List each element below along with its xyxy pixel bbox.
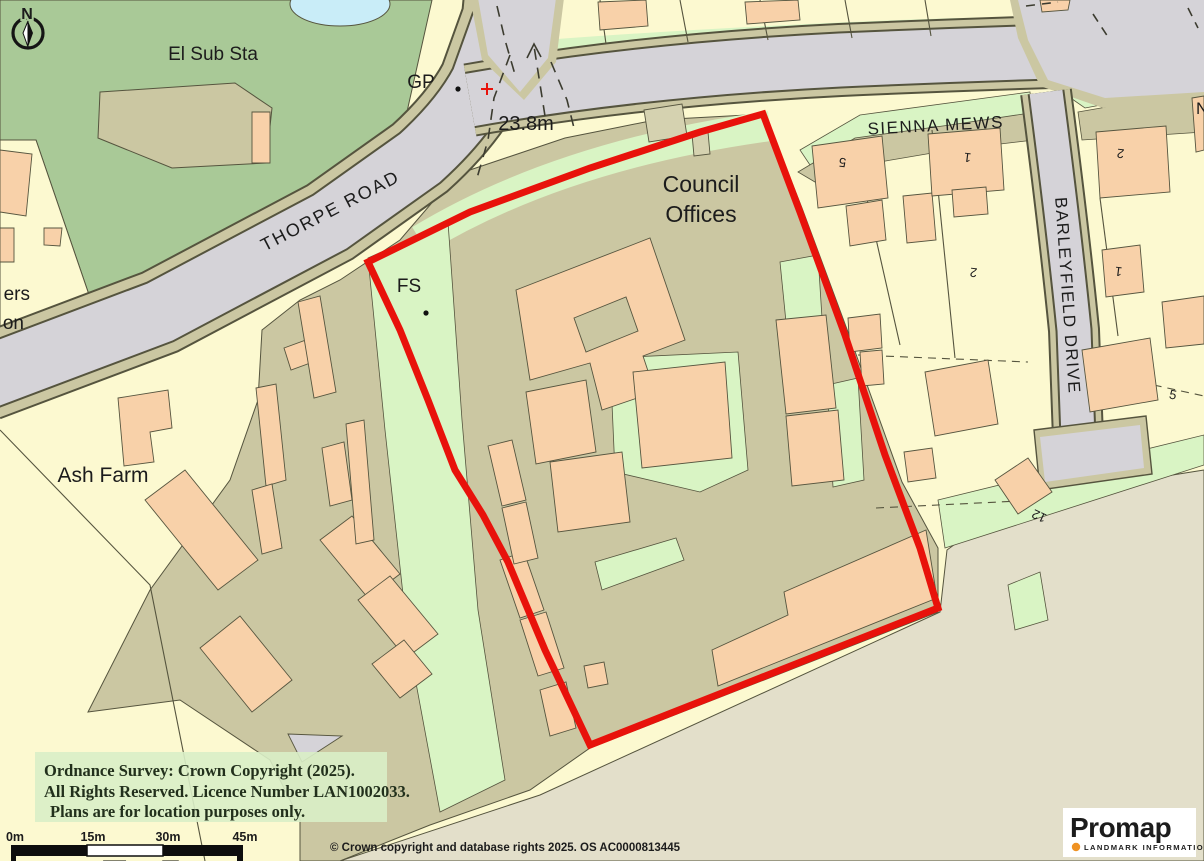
- map-viewport[interactable]: El Sub Sta GP 23.8m THORPE ROAD SIENNA M…: [0, 0, 1204, 861]
- edge-label-right-1: N: [1196, 99, 1204, 118]
- copyright-line-2: All Rights Reserved. Licence Number LAN1…: [44, 782, 410, 801]
- copyright-box: Ordnance Survey: Crown Copyright (2025).…: [35, 752, 410, 822]
- label-council-offices-2: Offices: [665, 201, 736, 227]
- footer-copyright: © Crown copyright and database rights 20…: [330, 842, 681, 854]
- fs-dot: [423, 310, 428, 315]
- logo-promap: Promap: [1070, 812, 1171, 843]
- label-fs: FS: [397, 276, 421, 297]
- compass-north-label: N: [21, 6, 33, 23]
- label-spot-height: 23.8m: [498, 113, 554, 135]
- logo-tagline: LANDMARK INFORMATION: [1084, 843, 1204, 852]
- edge-label-left-2: on: [3, 313, 24, 334]
- label-gp: GP: [407, 72, 434, 93]
- copyright-line-3: Plans are for location purposes only.: [50, 802, 305, 821]
- label-council-offices-1: Council: [663, 171, 740, 197]
- watermark-partial: W: [102, 842, 180, 861]
- promap-logo: Promap LANDMARK INFORMATION: [1063, 808, 1204, 857]
- copyright-line-1: Ordnance Survey: Crown Copyright (2025).: [44, 761, 355, 780]
- scale-label-3: 45m: [232, 830, 257, 844]
- edge-label-left-1: ers: [4, 284, 30, 305]
- scale-label-0: 0m: [6, 830, 24, 844]
- label-ash-farm: Ash Farm: [57, 464, 148, 487]
- map-canvas[interactable]: El Sub Sta GP 23.8m THORPE ROAD SIENNA M…: [0, 0, 1204, 861]
- logo-orange-dot-icon: [1072, 843, 1080, 851]
- gp-post-dot: [455, 86, 460, 91]
- label-el-sub-sta: El Sub Sta: [168, 44, 258, 65]
